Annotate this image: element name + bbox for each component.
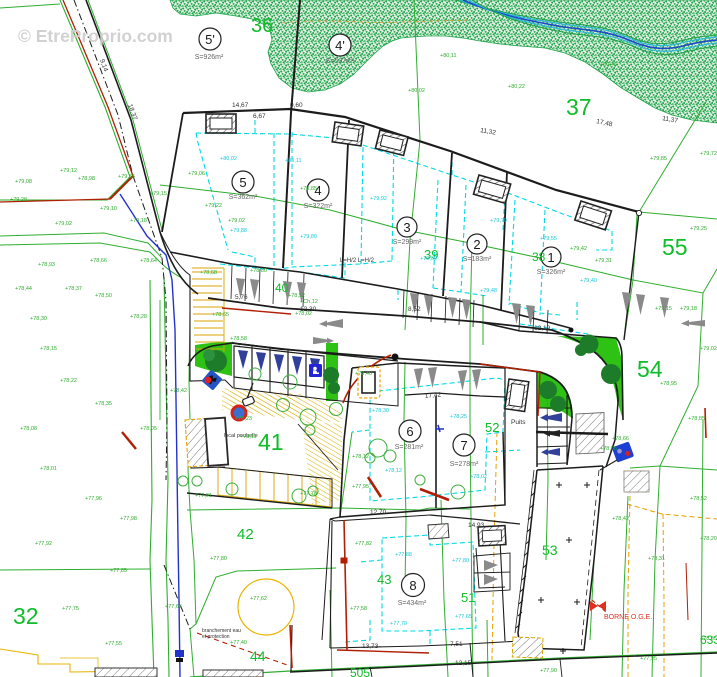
svg-text:+80,02: +80,02: [220, 156, 237, 162]
svg-text:+80,11: +80,11: [285, 158, 302, 164]
svg-text:+78,98: +78,98: [78, 176, 95, 182]
svg-text:+79,55: +79,55: [540, 236, 557, 242]
svg-text:S=281m²: S=281m²: [395, 444, 424, 451]
svg-text:+Ch,12: +Ch,12: [300, 299, 318, 305]
svg-text:38: 38: [532, 250, 546, 264]
svg-text:+77,95: +77,95: [352, 484, 369, 490]
svg-text:+79,35: +79,35: [118, 174, 135, 180]
svg-text:+79,12: +79,12: [60, 168, 77, 174]
svg-text:5: 5: [239, 175, 246, 190]
svg-text:41: 41: [258, 429, 284, 455]
svg-text:+80,46: +80,46: [600, 62, 617, 68]
svg-text:+79,85: +79,85: [650, 156, 667, 162]
svg-text:7: 7: [460, 438, 467, 453]
svg-text:+79,48: +79,48: [480, 288, 497, 294]
svg-text:5': 5': [205, 32, 215, 47]
svg-text:43: 43: [377, 572, 391, 587]
svg-text:+79,92: +79,92: [370, 196, 387, 202]
svg-text:+77,78: +77,78: [300, 491, 317, 497]
svg-text:12,19: 12,19: [534, 325, 551, 332]
svg-text:505: 505: [350, 666, 370, 677]
svg-text:55: 55: [662, 234, 688, 260]
svg-text:+78,30: +78,30: [30, 316, 47, 322]
svg-text:+77,98: +77,98: [120, 516, 137, 522]
svg-text:+79,10: +79,10: [100, 206, 117, 212]
svg-text:37: 37: [566, 94, 592, 120]
svg-text:+79,22: +79,22: [205, 203, 222, 209]
svg-text:+78,15: +78,15: [40, 346, 57, 352]
svg-text:+78,02: +78,02: [295, 311, 312, 317]
svg-text:+78,58: +78,58: [230, 336, 247, 342]
svg-text:+78,44: +78,44: [15, 286, 32, 292]
svg-text:+78,20: +78,20: [700, 536, 717, 542]
svg-text:+78,93: +78,93: [38, 262, 55, 268]
svg-text:+80,11: +80,11: [440, 53, 457, 59]
svg-text:+78,05: +78,05: [140, 426, 157, 432]
svg-text:S=299m²: S=299m²: [393, 239, 422, 246]
svg-text:+80,02: +80,02: [408, 88, 425, 94]
svg-text:52: 52: [485, 420, 499, 435]
svg-text:S=434m²: S=434m²: [398, 600, 427, 607]
svg-text:+79,42: +79,42: [570, 246, 587, 252]
svg-text:+78,64: +78,64: [140, 258, 157, 264]
svg-text:32: 32: [13, 603, 39, 629]
svg-text:+77,82: +77,82: [355, 541, 372, 547]
svg-text:12,70: 12,70: [370, 509, 387, 516]
svg-text:+78,85: +78,85: [300, 186, 317, 192]
svg-text:+78,08: +78,08: [20, 426, 37, 432]
svg-text:+78,35: +78,35: [95, 401, 112, 407]
svg-text:+78,01: +78,01: [40, 466, 57, 472]
svg-text:0,60: 0,60: [290, 102, 303, 109]
svg-text:+78,12: +78,12: [352, 454, 369, 460]
svg-text:+79,15: +79,15: [150, 191, 167, 197]
svg-text:+79,31: +79,31: [595, 258, 612, 264]
svg-text:8: 8: [409, 578, 416, 593]
svg-text:51: 51: [461, 590, 475, 605]
svg-text:+79,72: +79,72: [700, 151, 717, 157]
svg-text:+79,28: +79,28: [10, 197, 27, 203]
svg-text:2: 2: [473, 237, 480, 252]
svg-text:+78,66: +78,66: [90, 258, 107, 264]
svg-text:13,73: 13,73: [362, 643, 379, 650]
svg-text:+78,25: +78,25: [450, 414, 467, 420]
svg-text:+78,68: +78,68: [200, 270, 217, 276]
svg-text:+78,40: +78,40: [355, 371, 372, 377]
svg-text:4': 4': [335, 38, 345, 53]
svg-text:+78,30: +78,30: [372, 408, 389, 414]
svg-text:44: 44: [250, 648, 266, 664]
svg-text:+77,88: +77,88: [395, 552, 412, 558]
svg-text:+79,15: +79,15: [655, 306, 672, 312]
svg-text:+78,28: +78,28: [130, 314, 147, 320]
svg-text:5,76: 5,76: [235, 294, 248, 301]
svg-text:+78,22: +78,22: [60, 378, 77, 384]
svg-text:+78,05: +78,05: [700, 636, 717, 642]
svg-text:+78,02: +78,02: [470, 474, 487, 480]
svg-text:+78,55: +78,55: [600, 446, 617, 452]
svg-text:36: 36: [251, 15, 273, 37]
svg-text:L=H/2 L=H/2: L=H/2 L=H/2: [340, 258, 375, 264]
svg-text:+78,95: +78,95: [660, 381, 677, 387]
svg-text:+78,50: +78,50: [95, 293, 112, 299]
svg-text:7,51: 7,51: [450, 641, 463, 648]
svg-text:+78,23: +78,23: [235, 416, 252, 422]
svg-text:et protection: et protection: [202, 634, 230, 640]
svg-text:+77,70: +77,70: [390, 621, 407, 627]
svg-text:+79,02: +79,02: [228, 218, 245, 224]
svg-text:+78,65: +78,65: [212, 312, 229, 318]
svg-text:+77,75: +77,75: [62, 606, 79, 612]
svg-text:+78,52: +78,52: [690, 496, 707, 502]
svg-text:6: 6: [406, 424, 413, 439]
svg-text:+79,06: +79,06: [188, 171, 205, 177]
svg-text:+77,95: +77,95: [640, 656, 657, 662]
svg-text:+77,80: +77,80: [210, 556, 227, 562]
svg-text:42: 42: [237, 526, 254, 543]
svg-text:© EtreProprio.com: © EtreProprio.com: [18, 26, 173, 46]
svg-text:54: 54: [637, 356, 663, 382]
svg-text:+78,66: +78,66: [612, 436, 629, 442]
svg-text:+78,12: +78,12: [385, 468, 402, 474]
svg-text:S=362m²: S=362m²: [229, 194, 258, 201]
svg-text:S=326m²: S=326m²: [537, 269, 566, 276]
svg-text:+77,58: +77,58: [350, 606, 367, 612]
svg-text:+79,40: +79,40: [580, 278, 597, 284]
svg-text:+79,60: +79,60: [420, 256, 437, 262]
svg-text:+79,80: +79,80: [300, 234, 317, 240]
svg-text:14,93: 14,93: [468, 522, 485, 529]
svg-text:+78,37: +78,37: [65, 286, 82, 292]
svg-text:+78,80: +78,80: [250, 268, 267, 274]
svg-text:+78,11: +78,11: [240, 434, 257, 440]
svg-text:53: 53: [542, 542, 558, 558]
svg-text:+79,02: +79,02: [700, 346, 717, 352]
svg-text:17,42: 17,42: [425, 392, 442, 400]
svg-text:+77,90: +77,90: [540, 668, 557, 674]
svg-text:+77,62: +77,62: [250, 596, 267, 602]
svg-text:+79,02: +79,02: [55, 221, 72, 227]
svg-text:+78,31: +78,31: [648, 556, 665, 562]
svg-text:+79,18: +79,18: [130, 218, 147, 224]
svg-text:S=183m²: S=183m²: [463, 256, 492, 263]
svg-text:S=926m²: S=926m²: [195, 54, 224, 61]
svg-text:+77,66: +77,66: [165, 604, 182, 610]
svg-text:+77,55: +77,55: [105, 641, 122, 647]
svg-text:S=537m²: S=537m²: [326, 58, 355, 65]
svg-text:+77,40: +77,40: [230, 640, 247, 646]
svg-text:12,15: 12,15: [455, 660, 472, 667]
svg-text:+77,91: +77,91: [195, 493, 212, 499]
svg-text:S=278m²: S=278m²: [450, 461, 479, 468]
svg-text:S=322m²: S=322m²: [304, 203, 333, 210]
svg-text:14,67: 14,67: [232, 102, 249, 109]
svg-text:40: 40: [275, 281, 289, 295]
svg-text:8,52: 8,52: [408, 306, 421, 313]
svg-text:+80,22: +80,22: [508, 84, 525, 90]
svg-text:1: 1: [547, 250, 554, 265]
svg-text:+77,85: +77,85: [110, 568, 127, 574]
svg-text:+79,18: +79,18: [680, 306, 697, 312]
svg-text:Puits: Puits: [511, 419, 526, 426]
svg-text:+77,80: +77,80: [452, 558, 469, 564]
svg-text:+78,42: +78,42: [612, 516, 629, 522]
svg-text:+78,42: +78,42: [170, 388, 187, 394]
svg-text:+77,65: +77,65: [455, 614, 472, 620]
svg-text:+79,25: +79,25: [690, 226, 707, 232]
svg-text:3: 3: [403, 220, 410, 235]
svg-text:+79,88: +79,88: [230, 228, 247, 234]
svg-text:+77,92: +77,92: [35, 541, 52, 547]
svg-text:+77,96: +77,96: [85, 496, 102, 502]
svg-text:+79,70: +79,70: [490, 218, 507, 224]
svg-text:BORNE O.G.E.: BORNE O.G.E.: [604, 614, 652, 621]
svg-text:+78,85: +78,85: [688, 416, 705, 422]
svg-text:+79,08: +79,08: [15, 179, 32, 185]
svg-text:6,67: 6,67: [253, 113, 266, 120]
